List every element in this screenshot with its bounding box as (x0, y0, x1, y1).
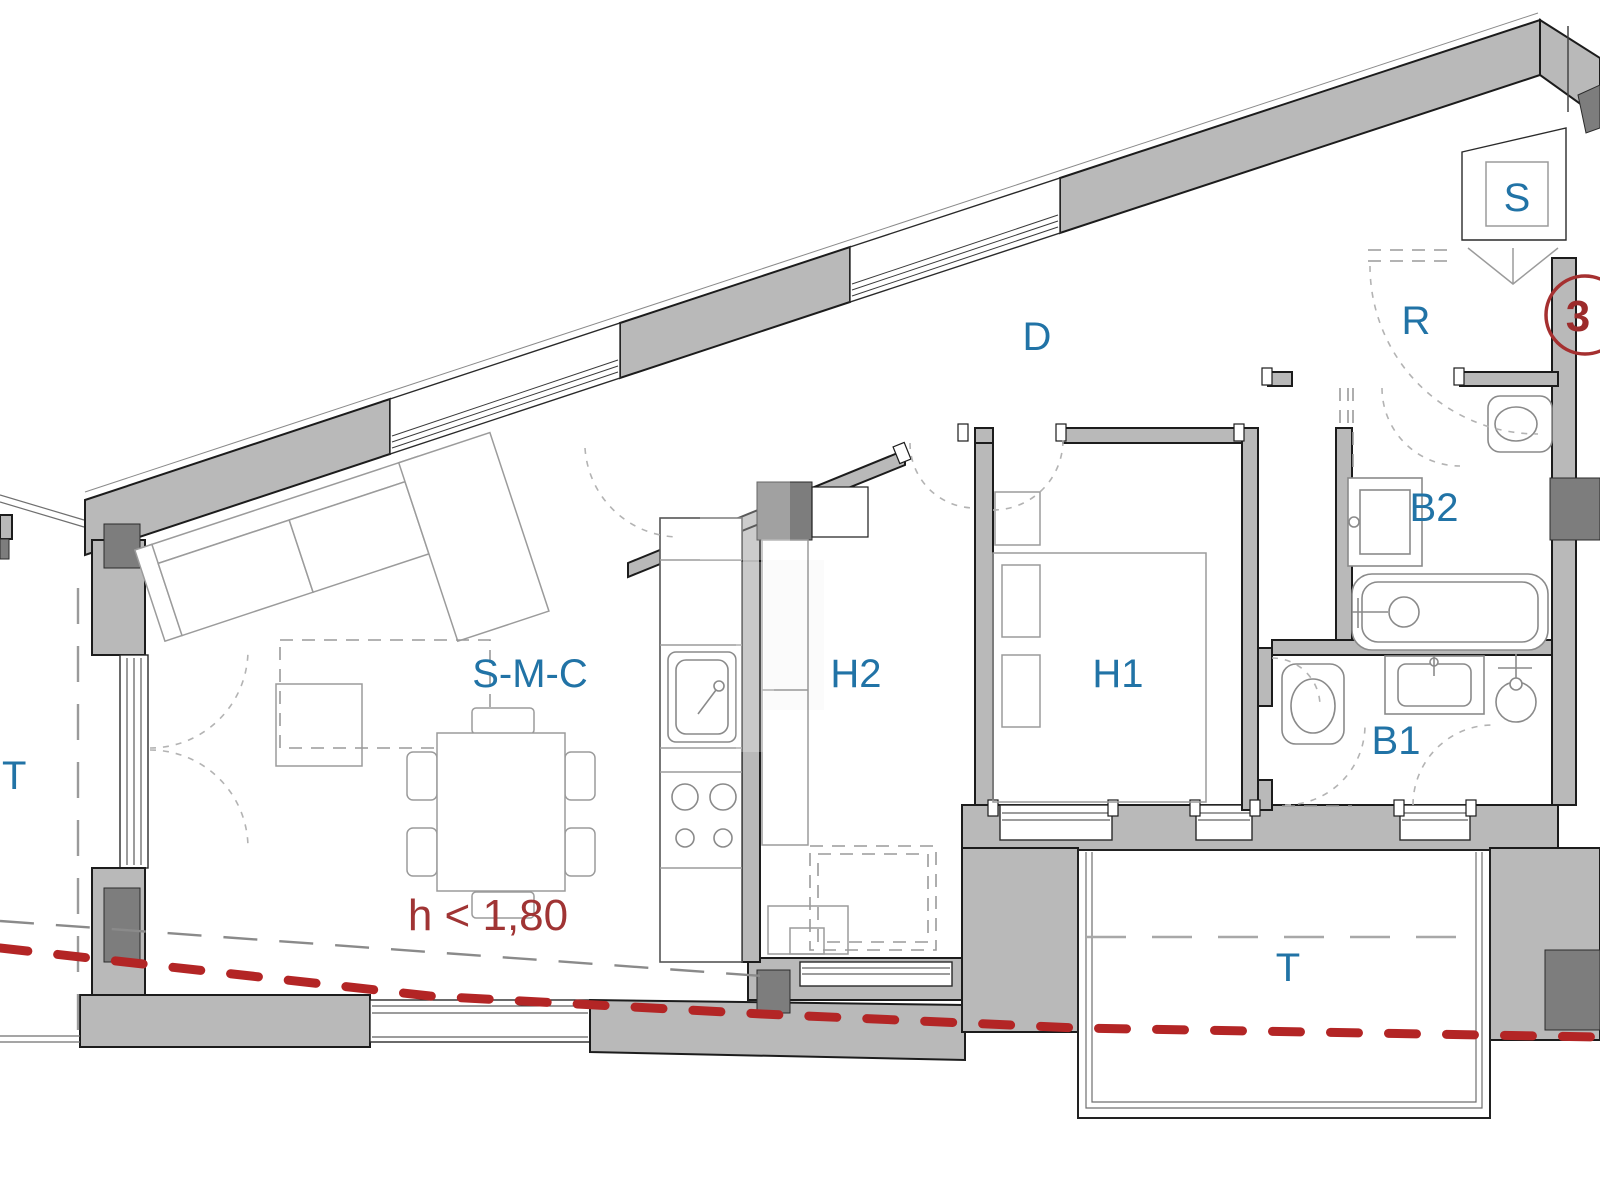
bed-h1 (993, 492, 1206, 802)
toilet-icon-b1 (1282, 664, 1344, 744)
toilet-icon-b2 (1488, 396, 1552, 452)
room-label-r: R (1402, 299, 1431, 343)
floor-plan-canvas: S-M-C H1 H2 B1 B2 D R S T T h < 1,80 3 (0, 0, 1600, 1200)
kitchen-sink-icon (668, 652, 736, 742)
shower-icon (1496, 654, 1536, 722)
bathtub-icon (1352, 574, 1548, 650)
room-label-s: S (1504, 176, 1531, 220)
room-label-smc: S-M-C (472, 652, 588, 696)
washbasin-icon-b1 (1385, 656, 1484, 714)
kitchen-counter (660, 518, 742, 962)
room-label-t-left: T (2, 754, 26, 798)
room-label-h1: H1 (1092, 652, 1143, 696)
floor-plan-drawing: S-M-C H1 H2 B1 B2 D R S T T h < 1,80 3 (0, 0, 1600, 1200)
bottom-exterior-wall (0, 958, 980, 1060)
dining-table-set (407, 708, 595, 918)
room-label-t-bottom: T (1276, 946, 1300, 990)
height-limit-label: h < 1,80 (408, 891, 568, 940)
room-label-b2: B2 (1410, 486, 1459, 530)
unit-number: 3 (1566, 292, 1590, 341)
room-label-b1: B1 (1372, 719, 1421, 763)
room-label-d: D (1023, 315, 1052, 359)
room-label-h2: H2 (830, 652, 881, 696)
left-exterior-wall (92, 524, 148, 997)
bed-h2-dashed (768, 846, 936, 954)
exterior-diagonal-wall (0, 13, 1600, 559)
coffee-table (276, 684, 362, 766)
